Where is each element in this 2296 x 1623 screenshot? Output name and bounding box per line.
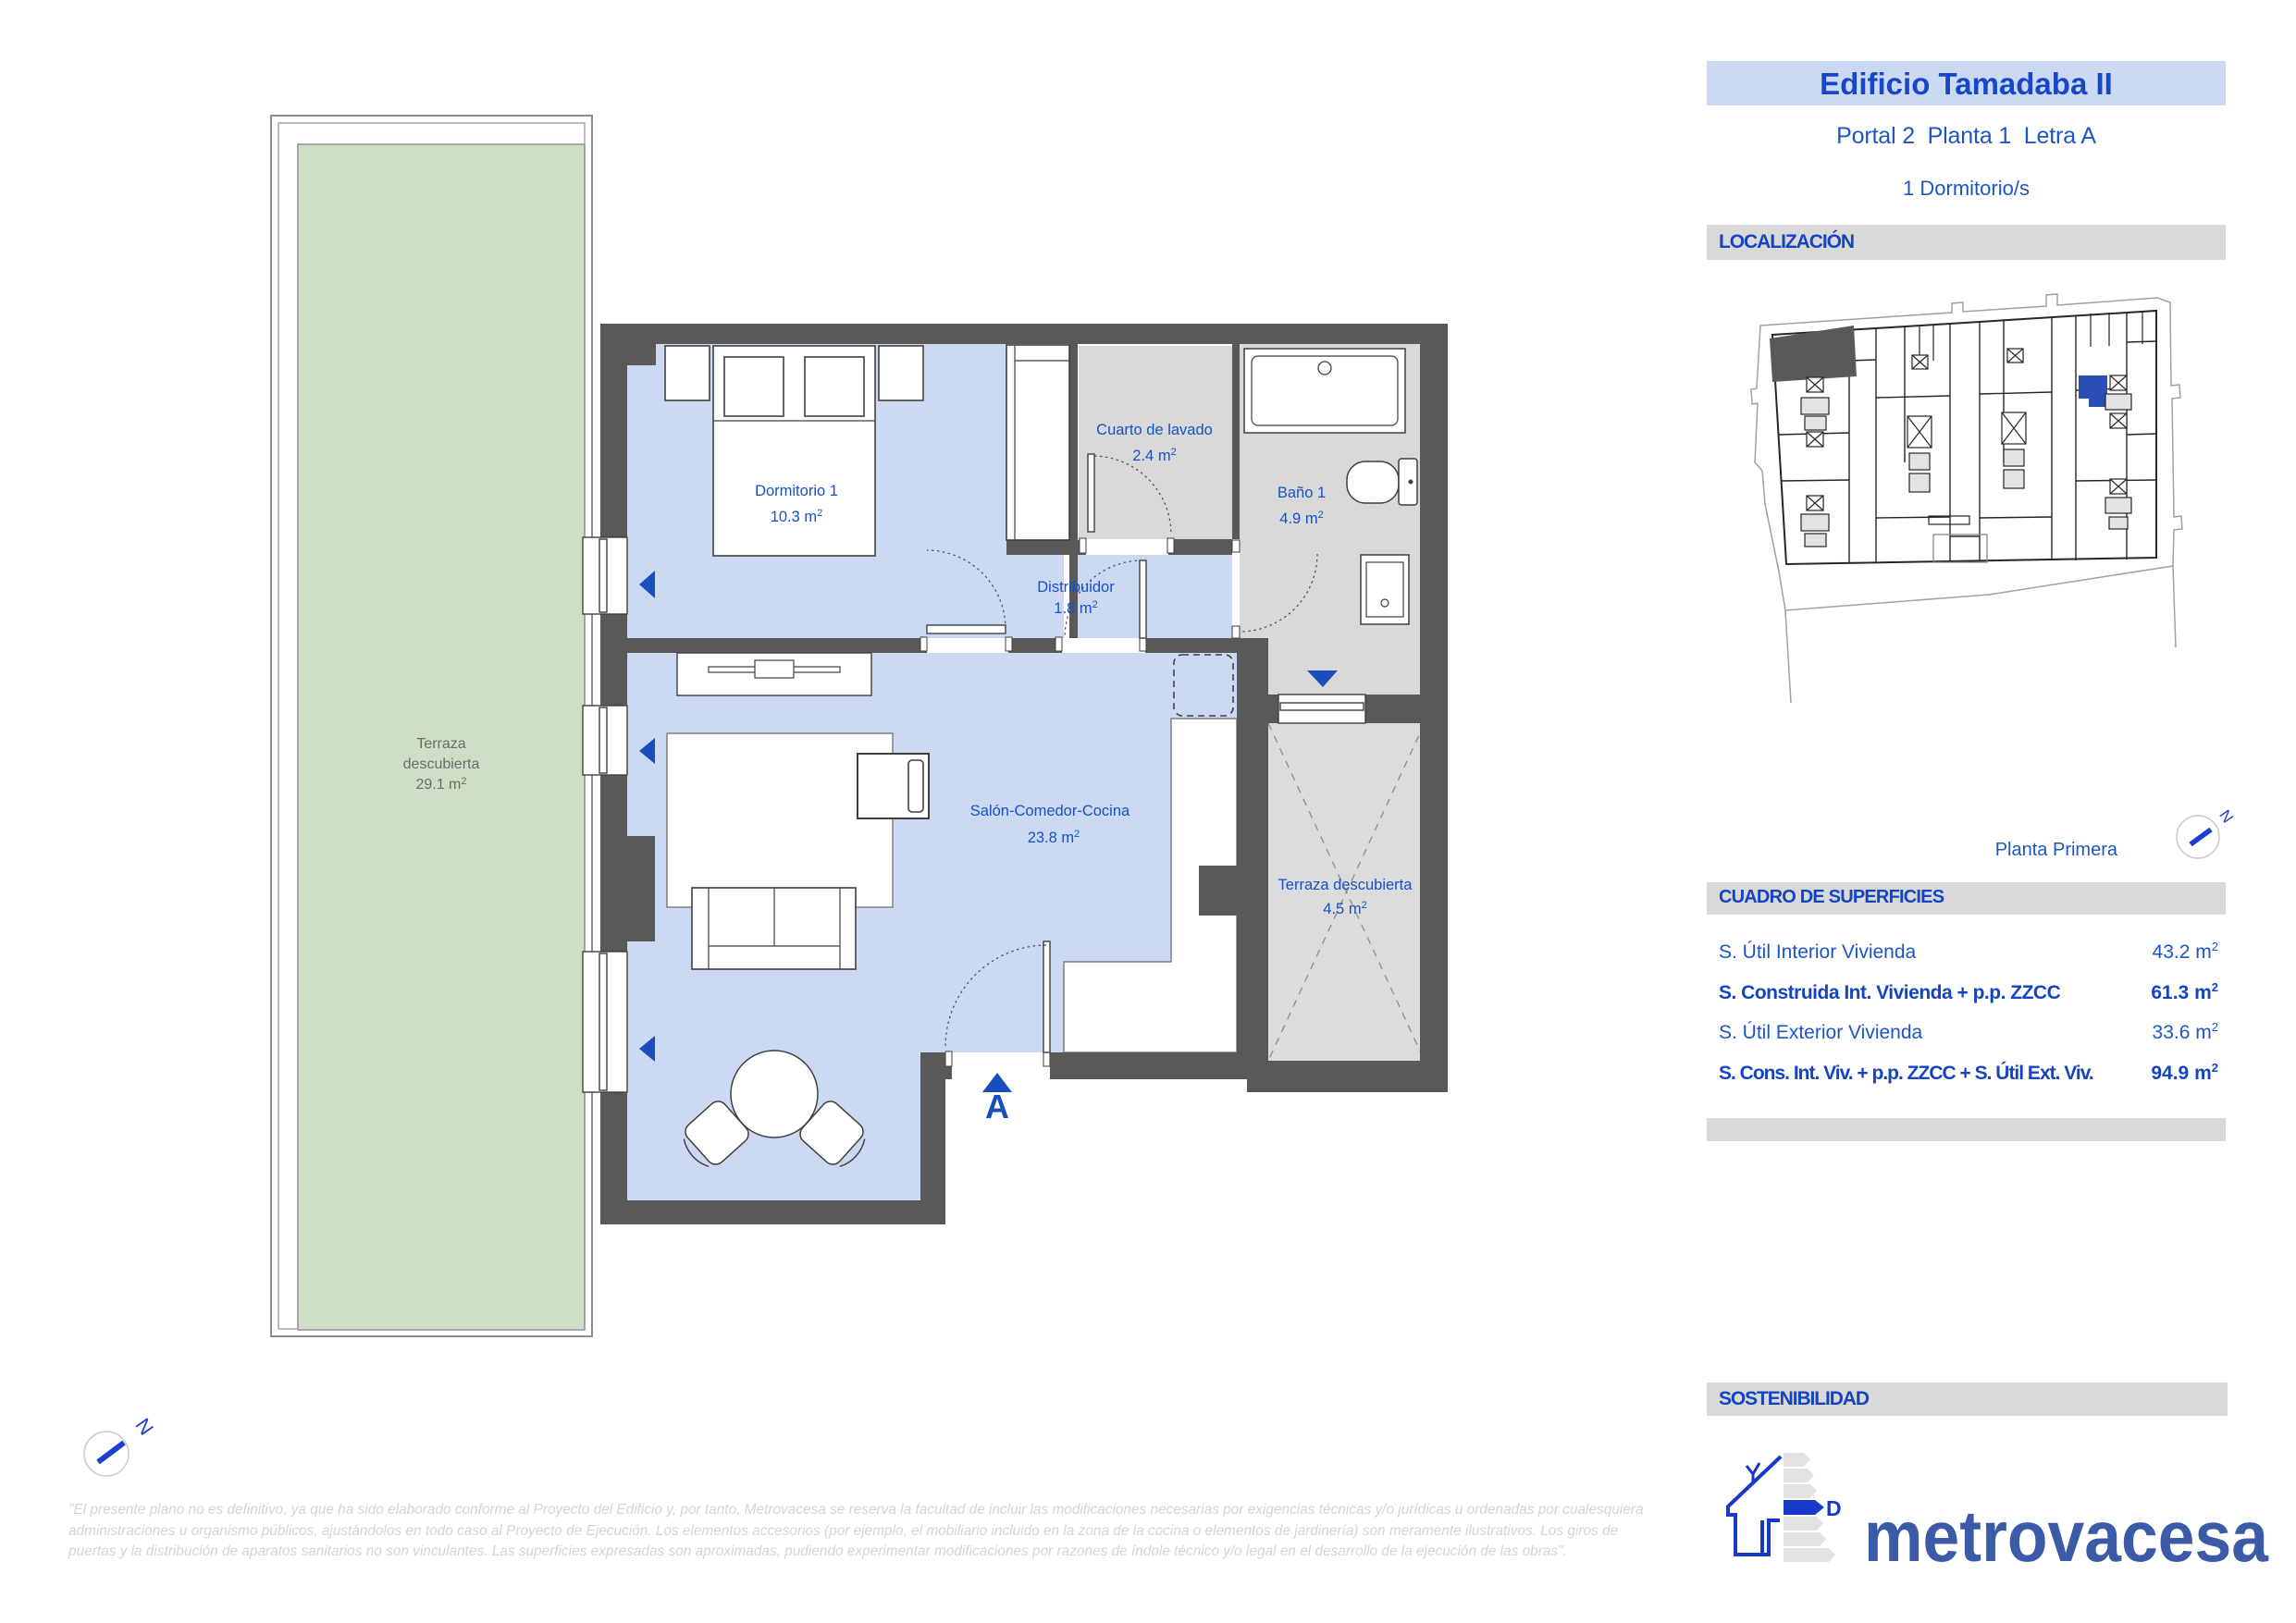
svg-text:descubierta: descubierta <box>403 756 480 772</box>
svg-text:23.8 m2: 23.8 m2 <box>1028 829 1080 846</box>
svg-text:Terraza: Terraza <box>416 736 465 752</box>
svg-text:Cuarto de lavado: Cuarto de lavado <box>1096 422 1213 438</box>
svg-text:metrovacesa: metrovacesa <box>1864 1495 2269 1577</box>
svg-text:4.5 m2: 4.5 m2 <box>1323 900 1366 917</box>
svg-text:A: A <box>985 1088 1009 1125</box>
svg-text:Baño 1: Baño 1 <box>1278 485 1326 501</box>
svg-text:N: N <box>2216 806 2237 826</box>
svg-text:29.1 m2: 29.1 m2 <box>415 776 466 793</box>
svg-text:1.8 m2: 1.8 m2 <box>1054 599 1097 617</box>
svg-text:Dormitorio 1: Dormitorio 1 <box>755 483 838 499</box>
svg-text:Salón-Comedor-Cocina: Salón-Comedor-Cocina <box>970 803 1130 819</box>
svg-text:2.4 m2: 2.4 m2 <box>1132 447 1176 464</box>
svg-text:10.3 m2: 10.3 m2 <box>771 508 823 525</box>
svg-text:4.9 m2: 4.9 m2 <box>1279 510 1323 527</box>
svg-text:D: D <box>1826 1496 1842 1520</box>
svg-text:Distribuidor: Distribuidor <box>1037 579 1115 596</box>
svg-text:Terraza descubierta: Terraza descubierta <box>1278 877 1413 893</box>
svg-text:N: N <box>130 1414 158 1439</box>
